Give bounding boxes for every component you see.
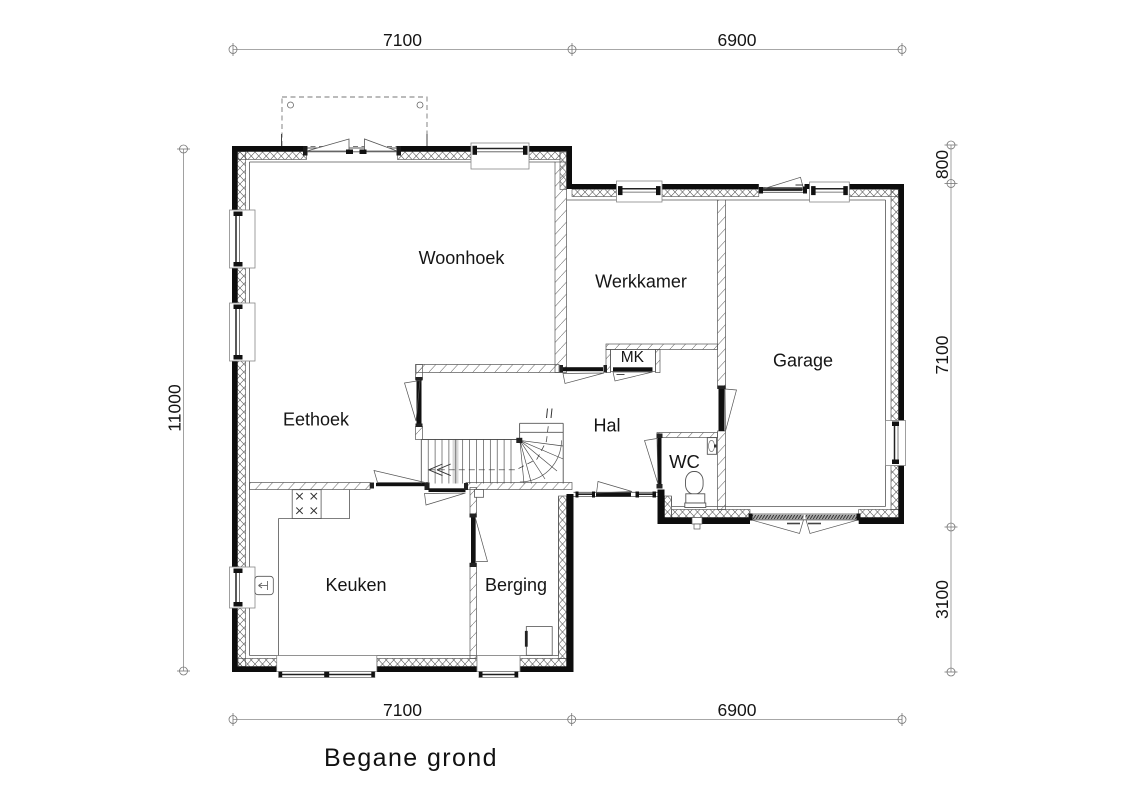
svg-text:Eethoek: Eethoek xyxy=(283,410,350,430)
svg-text:WC: WC xyxy=(669,451,700,472)
svg-text:7100: 7100 xyxy=(383,30,422,50)
svg-text:3100: 3100 xyxy=(932,580,952,619)
svg-text:MK: MK xyxy=(621,349,645,366)
svg-text:Werkkamer: Werkkamer xyxy=(595,272,687,292)
svg-text:6900: 6900 xyxy=(718,30,757,50)
svg-text:Woonhoek: Woonhoek xyxy=(419,248,506,268)
svg-text:Garage: Garage xyxy=(773,351,833,371)
svg-text:7100: 7100 xyxy=(932,335,952,374)
svg-text:800: 800 xyxy=(932,150,952,179)
svg-text:Berging: Berging xyxy=(485,575,547,595)
svg-text:7100: 7100 xyxy=(383,700,422,720)
svg-text:Keuken: Keuken xyxy=(325,575,386,595)
svg-text:Begane grond: Begane grond xyxy=(324,744,498,772)
svg-text:6900: 6900 xyxy=(718,700,757,720)
svg-text:11000: 11000 xyxy=(165,384,185,432)
svg-text:Hal: Hal xyxy=(593,416,620,436)
